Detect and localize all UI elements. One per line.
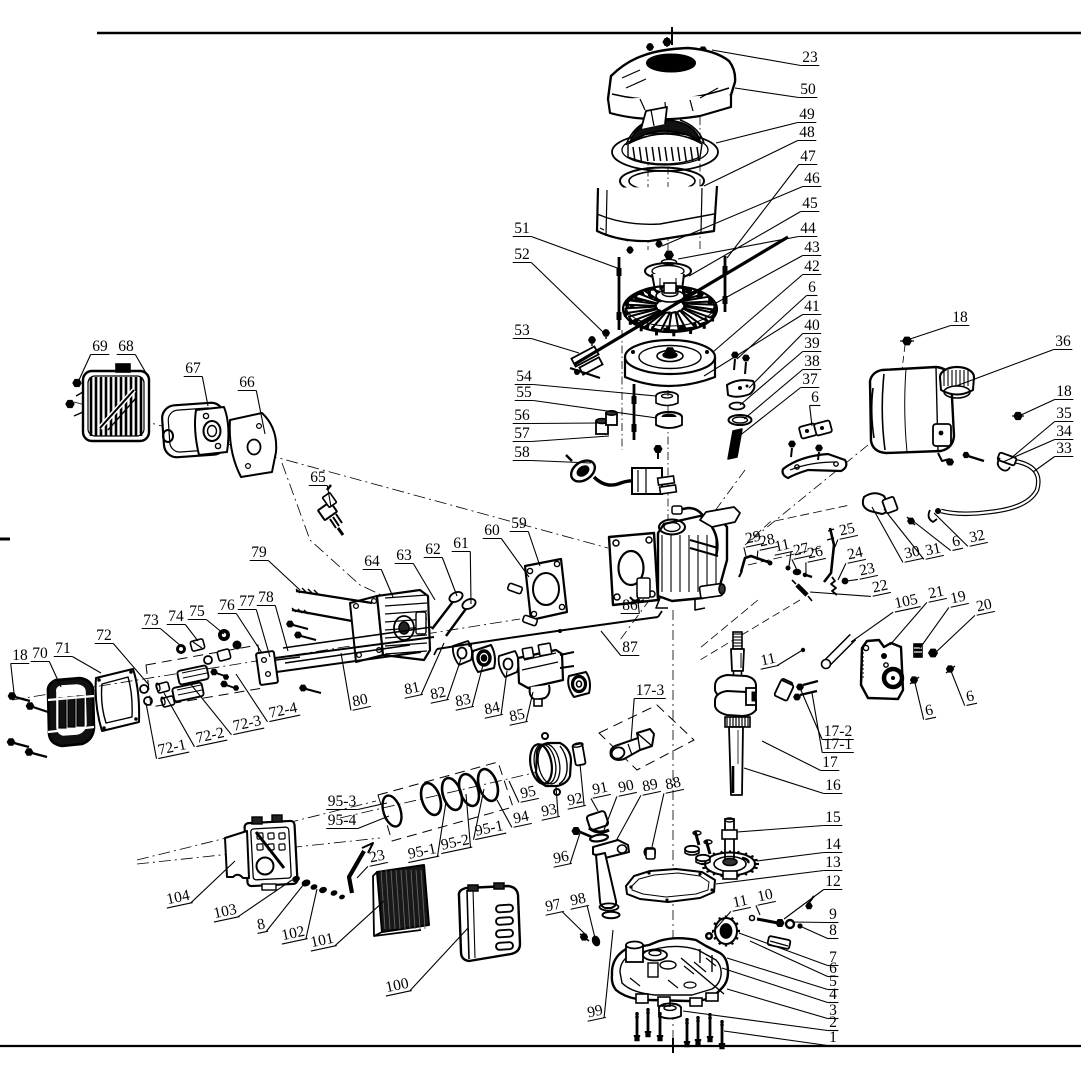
svg-text:59: 59 xyxy=(511,515,527,532)
svg-text:43: 43 xyxy=(804,239,820,256)
svg-text:38: 38 xyxy=(804,353,820,370)
svg-text:6: 6 xyxy=(811,389,819,406)
svg-text:17-3: 17-3 xyxy=(636,682,665,699)
svg-text:51: 51 xyxy=(514,220,530,237)
svg-text:67: 67 xyxy=(185,360,201,377)
svg-text:13: 13 xyxy=(825,854,841,871)
svg-text:78: 78 xyxy=(258,589,274,606)
svg-text:6: 6 xyxy=(808,279,816,296)
svg-text:57: 57 xyxy=(514,425,530,442)
svg-text:42: 42 xyxy=(804,258,820,275)
svg-text:71: 71 xyxy=(55,640,71,657)
svg-text:17: 17 xyxy=(822,754,838,771)
svg-text:95-3: 95-3 xyxy=(328,793,357,810)
svg-text:33: 33 xyxy=(1056,440,1072,457)
svg-text:50: 50 xyxy=(800,81,816,98)
svg-text:60: 60 xyxy=(484,522,500,539)
svg-text:66: 66 xyxy=(239,374,255,391)
svg-text:18: 18 xyxy=(12,647,28,664)
svg-text:54: 54 xyxy=(516,368,532,385)
svg-text:62: 62 xyxy=(425,541,441,558)
svg-text:40: 40 xyxy=(804,317,820,334)
svg-text:37: 37 xyxy=(802,371,818,388)
svg-text:23: 23 xyxy=(802,49,818,66)
svg-text:39: 39 xyxy=(804,335,820,352)
svg-text:95-4: 95-4 xyxy=(328,812,357,829)
svg-text:52: 52 xyxy=(514,246,530,263)
svg-text:41: 41 xyxy=(804,298,820,315)
svg-text:75: 75 xyxy=(189,603,205,620)
svg-text:9: 9 xyxy=(829,906,837,923)
svg-text:68: 68 xyxy=(118,338,134,355)
svg-text:18: 18 xyxy=(952,309,968,326)
svg-text:77: 77 xyxy=(239,593,255,610)
svg-text:8: 8 xyxy=(829,922,837,939)
svg-text:35: 35 xyxy=(1056,405,1072,422)
svg-text:12: 12 xyxy=(825,873,841,890)
svg-text:18: 18 xyxy=(1056,383,1072,400)
svg-text:63: 63 xyxy=(396,547,412,564)
svg-text:1: 1 xyxy=(829,1029,837,1046)
svg-text:56: 56 xyxy=(514,407,530,424)
svg-text:17-1: 17-1 xyxy=(824,736,852,753)
svg-text:70: 70 xyxy=(32,645,48,662)
svg-text:53: 53 xyxy=(514,322,530,339)
svg-text:46: 46 xyxy=(804,170,820,187)
svg-text:69: 69 xyxy=(92,338,108,355)
svg-text:48: 48 xyxy=(799,124,815,141)
svg-text:72: 72 xyxy=(96,627,112,644)
svg-text:73: 73 xyxy=(143,612,159,629)
svg-text:4: 4 xyxy=(829,986,837,1003)
svg-text:55: 55 xyxy=(516,384,532,401)
svg-text:14: 14 xyxy=(825,836,841,853)
svg-text:49: 49 xyxy=(799,106,815,123)
svg-text:86: 86 xyxy=(622,597,638,614)
svg-text:58: 58 xyxy=(514,444,530,461)
svg-text:36: 36 xyxy=(1055,333,1071,350)
svg-text:87: 87 xyxy=(622,639,638,656)
svg-text:76: 76 xyxy=(219,597,235,614)
svg-text:64: 64 xyxy=(364,553,380,570)
svg-text:34: 34 xyxy=(1056,423,1072,440)
svg-text:61: 61 xyxy=(453,535,469,552)
svg-text:79: 79 xyxy=(251,544,267,561)
svg-text:16: 16 xyxy=(825,777,841,794)
svg-text:65: 65 xyxy=(310,469,326,486)
svg-text:44: 44 xyxy=(800,220,816,237)
svg-text:47: 47 xyxy=(800,148,816,165)
svg-text:15: 15 xyxy=(825,809,841,826)
svg-text:45: 45 xyxy=(802,195,818,212)
svg-text:74: 74 xyxy=(168,608,184,625)
